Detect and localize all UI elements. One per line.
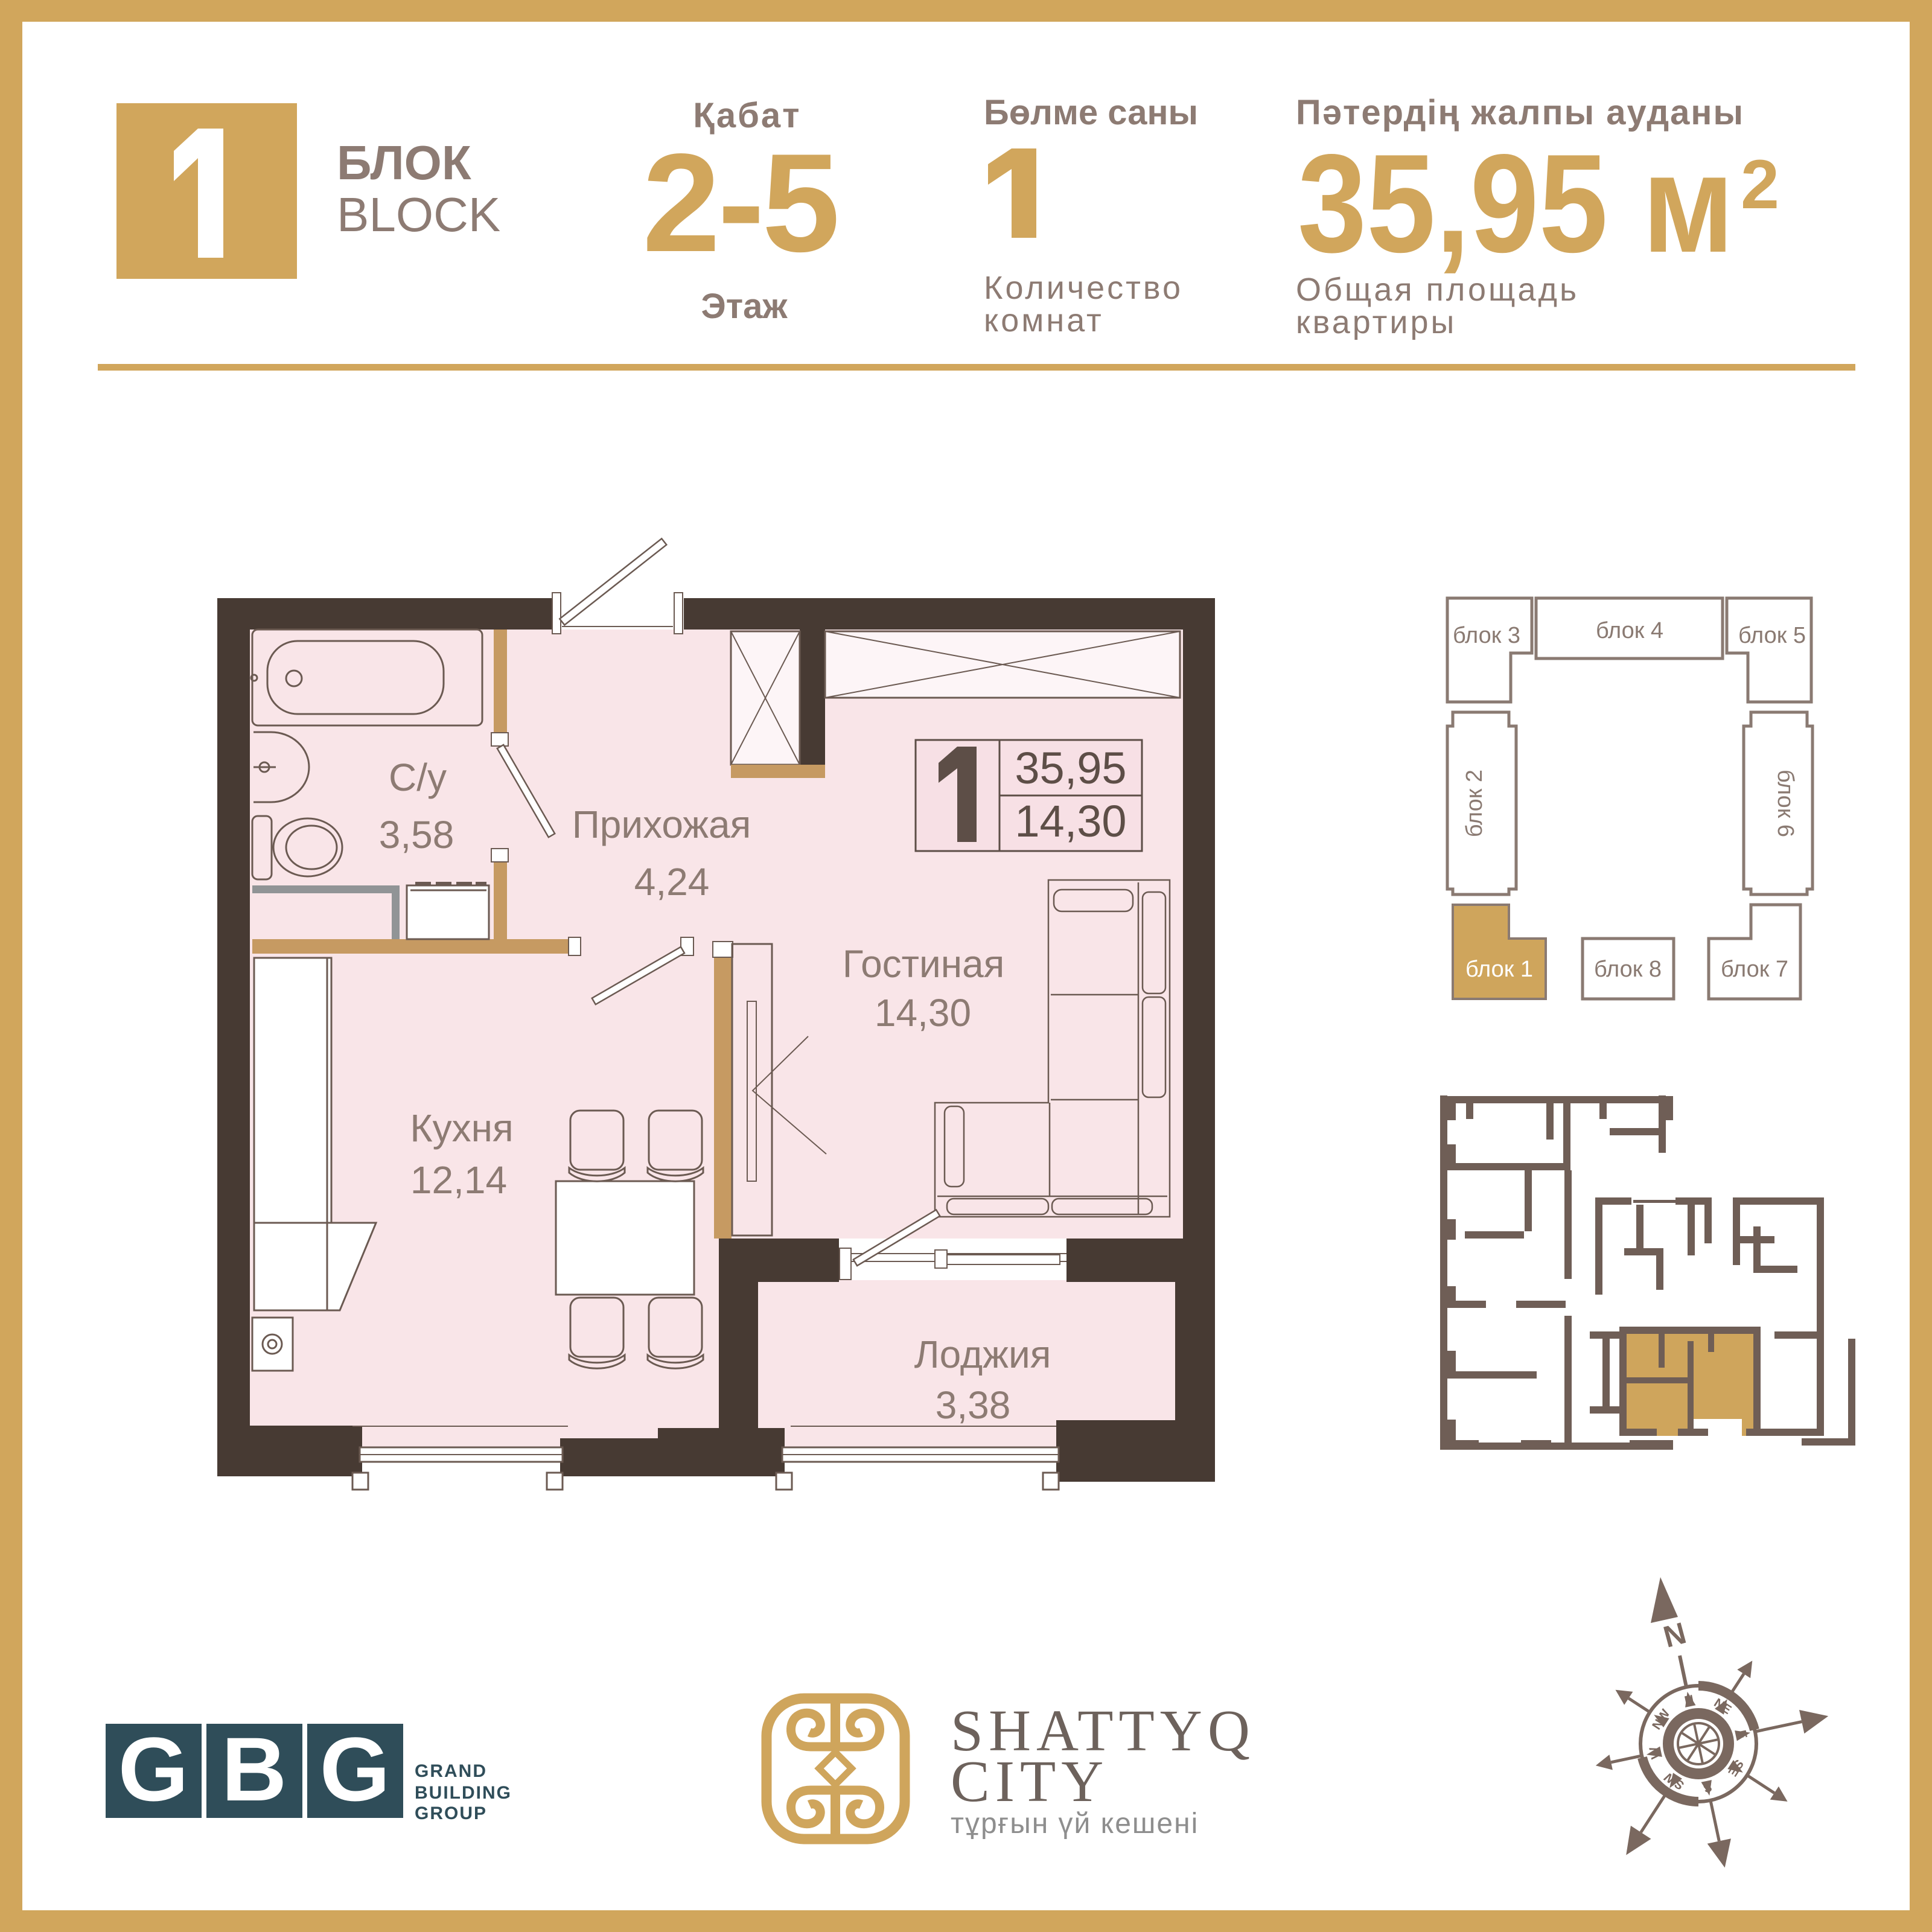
svg-text:Лоджия: Лоджия bbox=[914, 1333, 1051, 1376]
svg-text:3,58: 3,58 bbox=[379, 813, 454, 856]
svg-text:Количество: Количество bbox=[984, 270, 1183, 306]
svg-text:BLOCK: BLOCK bbox=[337, 188, 500, 241]
svg-text:Общая площадь: Общая площадь bbox=[1296, 272, 1579, 308]
svg-text:14,30: 14,30 bbox=[875, 991, 971, 1035]
svg-text:С/у: С/у bbox=[389, 756, 447, 799]
svg-text:блок 5: блок 5 bbox=[1738, 623, 1806, 648]
svg-text:G: G bbox=[118, 1718, 189, 1820]
svg-text:Прихожая: Прихожая bbox=[572, 803, 751, 846]
svg-text:2-5: 2-5 bbox=[642, 125, 837, 281]
svg-text:Гостиная: Гостиная bbox=[843, 942, 1005, 986]
svg-text:Этаж: Этаж bbox=[701, 287, 788, 326]
svg-text:блок 8: блок 8 bbox=[1594, 957, 1662, 982]
svg-text:блок 3: блок 3 bbox=[1453, 623, 1520, 648]
svg-text:БЛОК: БЛОК bbox=[337, 136, 471, 190]
svg-text:блок 2: блок 2 bbox=[1462, 770, 1487, 837]
svg-text:Кухня: Кухня bbox=[410, 1106, 513, 1150]
svg-text:GROUP: GROUP bbox=[415, 1803, 487, 1823]
svg-text:комнат: комнат bbox=[984, 302, 1104, 339]
svg-text:G: G bbox=[320, 1718, 391, 1820]
svg-text:4,24: 4,24 bbox=[634, 860, 710, 904]
svg-text:3,38: 3,38 bbox=[936, 1383, 1011, 1427]
svg-text:35,95: 35,95 bbox=[1015, 743, 1126, 793]
svg-text:квартиры: квартиры bbox=[1296, 304, 1456, 340]
svg-text:B: B bbox=[222, 1718, 287, 1820]
svg-text:CITY: CITY bbox=[951, 1749, 1109, 1814]
svg-text:Бөлме саны: Бөлме саны bbox=[984, 93, 1198, 132]
svg-text:12,14: 12,14 bbox=[410, 1158, 507, 1202]
svg-text:блок 7: блок 7 bbox=[1721, 957, 1788, 982]
svg-text:35,95 м: 35,95 м bbox=[1298, 126, 1734, 282]
svg-text:2: 2 bbox=[1741, 146, 1779, 223]
svg-text:тұрғын үй кешені: тұрғын үй кешені bbox=[951, 1808, 1199, 1840]
svg-text:14,30: 14,30 bbox=[1015, 796, 1126, 846]
svg-text:BUILDING: BUILDING bbox=[415, 1783, 512, 1803]
svg-text:блок 4: блок 4 bbox=[1596, 618, 1663, 643]
svg-text:GRAND: GRAND bbox=[415, 1761, 487, 1781]
svg-text:блок 1: блок 1 bbox=[1465, 957, 1533, 982]
svg-text:блок 6: блок 6 bbox=[1773, 770, 1798, 837]
